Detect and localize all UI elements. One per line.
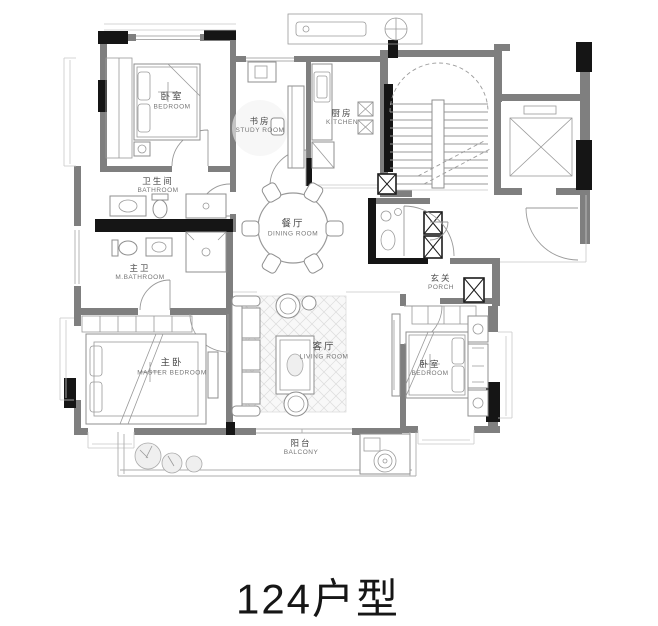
- kitchen-furniture: [312, 64, 373, 168]
- vanity: [146, 238, 172, 256]
- bathroom-fixtures: [110, 194, 226, 218]
- basin: [381, 211, 391, 221]
- sofa-armrest: [232, 296, 260, 306]
- study-furniture: [232, 62, 304, 168]
- elevator-x-icon: [510, 118, 572, 176]
- shower: [186, 194, 226, 218]
- toilet-tank: [112, 240, 118, 256]
- bedroom-right-furniture: [406, 306, 488, 416]
- bed: [86, 334, 206, 424]
- plant: [135, 443, 161, 469]
- toilet: [119, 241, 137, 255]
- nightstand: [468, 390, 488, 416]
- master-bedroom-furniture: [82, 316, 218, 424]
- bed: [406, 332, 468, 398]
- floor-plan-drawing: [0, 0, 658, 626]
- dining-chair: [242, 221, 259, 236]
- bench: [208, 352, 218, 398]
- floor-plan-page: 卧室 BEDROOM 书房 STUDY ROOM 厨房 KITCHEN 卫生间 …: [0, 0, 658, 626]
- bedroom-top-furniture: [106, 58, 200, 158]
- plant: [186, 456, 202, 472]
- cabinet: [248, 62, 276, 82]
- dining-table: [258, 193, 328, 263]
- sofa-seat: [242, 340, 260, 370]
- flue-shafts: [378, 174, 484, 302]
- balcony-furniture: [135, 434, 410, 474]
- staircase: [390, 63, 492, 188]
- living-room-furniture: [232, 294, 400, 416]
- desk-chair: [271, 118, 284, 135]
- table-decor: [287, 354, 303, 376]
- door-master-bathroom: [140, 280, 170, 310]
- door-stairwell: [526, 208, 578, 260]
- master-bathroom-fixtures: [112, 232, 226, 272]
- dining-chair: [326, 221, 343, 236]
- vanity: [110, 196, 146, 216]
- plan-title: 124户型: [236, 566, 400, 626]
- nightstand: [134, 142, 150, 156]
- toilet-tank: [152, 194, 168, 200]
- dining-room-furniture: [242, 181, 343, 274]
- ac-unit: [296, 22, 366, 36]
- utility-wc-fixtures: [381, 209, 402, 251]
- nightstand: [468, 316, 488, 342]
- desk: [288, 86, 304, 168]
- bed: [134, 64, 200, 140]
- elevator: [510, 106, 572, 176]
- sofa-seat: [242, 372, 260, 404]
- tv-console: [392, 314, 400, 396]
- ac-platform: [288, 14, 422, 44]
- stair-break-line: [418, 140, 492, 184]
- sofa-seat: [242, 308, 260, 338]
- elevator-door: [524, 106, 556, 114]
- toilet: [153, 200, 167, 218]
- toilet: [381, 230, 395, 250]
- stair-rail: [432, 100, 444, 188]
- sofa-back: [232, 304, 242, 408]
- sofa-armrest: [232, 406, 260, 416]
- side-table: [302, 296, 316, 310]
- wardrobe: [82, 316, 192, 332]
